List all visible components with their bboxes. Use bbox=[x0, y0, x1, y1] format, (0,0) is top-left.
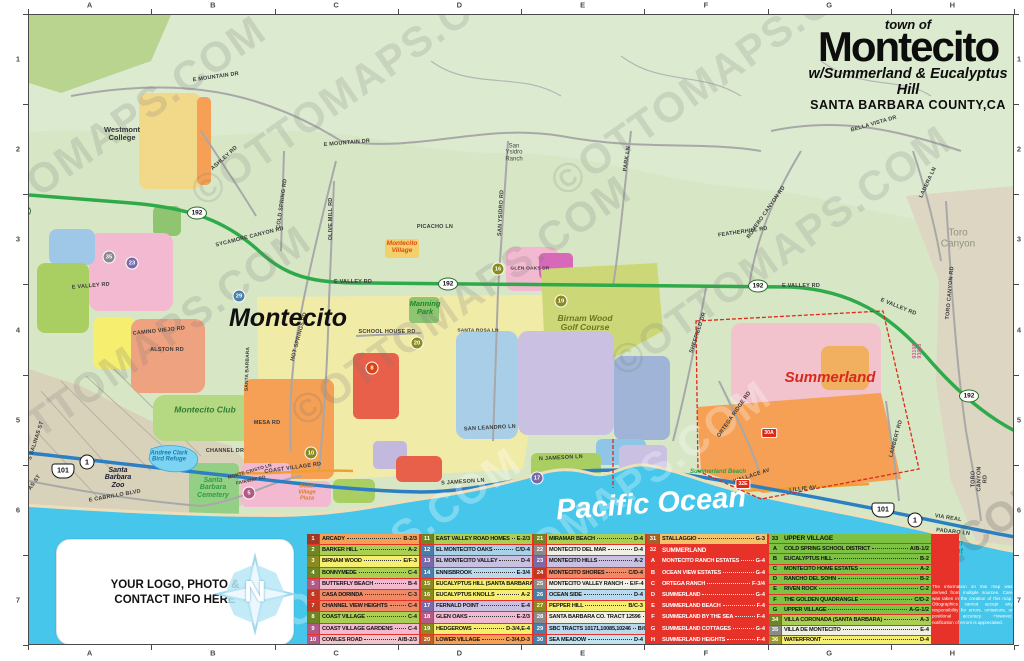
legend-row-body: GLEN OAKSE-2/3 bbox=[434, 612, 532, 622]
legend-row-number: 24 bbox=[534, 568, 546, 578]
legend-row-number: 22 bbox=[534, 545, 546, 555]
legend-row: 14ENNISBROOKE-3/4 bbox=[421, 568, 532, 578]
legend-row-number: A bbox=[769, 544, 781, 553]
legend-row-body: OCEAN SIDED-4 bbox=[547, 590, 645, 600]
legend-dots bbox=[625, 583, 628, 584]
grid-number-4: 4 bbox=[16, 325, 20, 334]
grid-tick bbox=[28, 645, 29, 650]
legend-row-body: CASA DORINDAC-3 bbox=[320, 590, 419, 600]
legend-row-number: E bbox=[769, 585, 781, 594]
legend-grid-ref: D-4 bbox=[634, 637, 643, 643]
legend-item-label: MIRAMAR BEACH bbox=[549, 536, 595, 542]
legend-row-number: G bbox=[769, 605, 781, 614]
grid-tick bbox=[1014, 465, 1019, 466]
legend-row: ESUMMERLAND BEACHF-4 bbox=[647, 601, 767, 611]
legend-row-number: B bbox=[769, 554, 781, 563]
legend-item-label: CASA DORINDA bbox=[322, 592, 363, 598]
area-patch bbox=[37, 263, 89, 333]
legend-item-label: VILLA DE MONTECITO bbox=[784, 627, 841, 633]
legend-row: 21MIRAMAR BEACHD-4 bbox=[534, 534, 645, 544]
legend-row-number: D bbox=[647, 590, 659, 600]
legend-row-number: 16 bbox=[421, 590, 433, 600]
map-canvas: ©OTTOMAPS.COM©OTTOMAPS.COM©OTTOMAPS.COM©… bbox=[28, 14, 1014, 645]
legend-item-label: CHANNEL VIEW HEIGHTS bbox=[322, 603, 388, 609]
grid-tick bbox=[23, 284, 28, 285]
legend-grid-ref: A-G-1/2 bbox=[909, 607, 929, 613]
title-subtitle: w/Summerland & Eucalyptus Hill bbox=[807, 66, 1009, 98]
legend-row: HSUMMERLAND HEIGHTSF-4 bbox=[647, 635, 767, 645]
legend-row-number: 18 bbox=[421, 612, 433, 622]
legend-grid-ref: A-2 bbox=[920, 566, 929, 572]
legend-grid-ref: B-4 bbox=[408, 581, 417, 587]
grid-tick bbox=[768, 9, 769, 14]
grid-tick bbox=[23, 375, 28, 376]
legend-row: 20LOWER VILLAGEC-3/4,D-3 bbox=[421, 635, 532, 645]
legend-grid-ref: C-4 bbox=[408, 603, 417, 609]
legend-item-label: SANTA BARBARA CO. TRACT 12596 bbox=[549, 614, 641, 620]
legend-dots bbox=[707, 583, 750, 584]
legend-row: 15EUCALYPTUS HILL (SANTA BARBARA)B-3 bbox=[421, 579, 532, 589]
area-patch bbox=[49, 229, 95, 265]
legend-row-body: ORTEGA RANCHF-3/4 bbox=[660, 579, 767, 589]
legend-row: 26OCEAN SIDED-4 bbox=[534, 590, 645, 600]
legend-row-body: MONTECITO RANCH ESTATESG-4 bbox=[660, 556, 767, 566]
legend-dots bbox=[347, 538, 402, 539]
legend-dots bbox=[723, 572, 754, 573]
legend-dots bbox=[643, 616, 645, 617]
legend-row-body: MONTECITO HILLSA-2 bbox=[547, 556, 645, 566]
legend-item-label: OCEAN SIDE bbox=[549, 592, 582, 598]
grid-tick bbox=[891, 645, 892, 650]
legend-grid-ref: C-3/4,D-3 bbox=[506, 637, 530, 643]
legend-row: 27PEPPER HILLB/C-3 bbox=[534, 601, 645, 611]
grid-letter-F: F bbox=[704, 1, 709, 10]
legend-row: 24MONTECITO SHORESC/D-4 bbox=[534, 568, 645, 578]
legend-item-label: SUMMERLAND COTTAGES bbox=[662, 626, 731, 632]
ennisbrook-area bbox=[456, 331, 518, 439]
grid-letter-H: H bbox=[950, 649, 955, 658]
legend-row: 18GLEN OAKSE-2/3 bbox=[421, 612, 532, 622]
legend-row-number: 28 bbox=[534, 612, 546, 622]
grid-tick bbox=[1014, 645, 1019, 646]
grid-number-5: 5 bbox=[1017, 415, 1021, 424]
legend-row-number: 3 bbox=[307, 556, 319, 566]
legend-row-body: EAST VALLEY ROAD HOMESE-2/3 bbox=[434, 534, 532, 544]
grid-tick bbox=[23, 104, 28, 105]
legend-dots bbox=[735, 616, 754, 617]
area-patch bbox=[197, 97, 211, 185]
legend-row-number: 8 bbox=[307, 612, 319, 622]
legend-grid-ref: B-2 bbox=[920, 576, 929, 582]
legend-grid-ref: C/D-2 bbox=[914, 597, 929, 603]
legend-grid-ref: B/C-3 bbox=[638, 626, 645, 632]
legend-dots bbox=[497, 594, 519, 595]
legend-dots bbox=[469, 616, 514, 617]
legend-row-body: BARKER HILLA-2 bbox=[320, 545, 419, 555]
legend-row: 13EL MONTECITO VALLEYD-4 bbox=[421, 556, 532, 566]
legend-item-label: HEDGEROWS bbox=[436, 626, 472, 632]
legend-row-body: RANCHO DEL SOHNB-2 bbox=[782, 575, 931, 584]
legend-item-label: SUMMERLAND BEACH bbox=[662, 603, 721, 609]
legend-row-body: CHANNEL VIEW HEIGHTSC-4 bbox=[320, 601, 419, 611]
legend-row-body: SBC TRACTS 10171,10085,10246B/C-3 bbox=[547, 624, 645, 634]
legend-row: 6CASA DORINDAC-3 bbox=[307, 590, 419, 600]
legend-row-body: RIVEN ROCKC-2 bbox=[782, 585, 931, 594]
legend-row-body: COWLES ROADA/B-2/3 bbox=[320, 635, 419, 645]
legend-grid-ref: G-4 bbox=[756, 570, 765, 576]
grid-tick bbox=[1014, 194, 1019, 195]
legend-row: 29SBC TRACTS 10171,10085,10246B/C-3 bbox=[534, 624, 645, 634]
legend-row-number: 27 bbox=[534, 601, 546, 611]
legend-row-number: E bbox=[647, 601, 659, 611]
legend-row-body: COLD SPRING SCHOOL DISTRICTA/B-1/2 bbox=[782, 544, 931, 553]
legend-row-number: 19 bbox=[421, 624, 433, 634]
legend-dots bbox=[828, 609, 907, 610]
legend-dots bbox=[481, 605, 520, 606]
grid-tick bbox=[275, 645, 276, 650]
legend-dots bbox=[860, 568, 918, 569]
legend-row-number: 29 bbox=[534, 624, 546, 634]
grid-letter-B: B bbox=[210, 1, 215, 10]
legend-dots bbox=[633, 628, 636, 629]
grid-tick bbox=[644, 645, 645, 650]
legend-column: 11EAST VALLEY ROAD HOMESE-2/312EL MONTEC… bbox=[421, 534, 532, 645]
legend-item-label: GLEN OAKS bbox=[436, 614, 467, 620]
grid-letter-A: A bbox=[87, 1, 92, 10]
legend-row: FSUMMERLAND BY THE SEAF-4 bbox=[647, 612, 767, 622]
legend-row: 34VILLA CORONADA (SANTA BARBARA)A-3 bbox=[769, 615, 931, 624]
legend-item-label: VILLA CORONADA (SANTA BARBARA) bbox=[784, 617, 882, 623]
legend-row: AMONTECITO RANCH ESTATESG-4 bbox=[647, 556, 767, 566]
legend-item-label: EL MONTECITO VALLEY bbox=[436, 558, 497, 564]
grid-tick bbox=[398, 645, 399, 650]
legend-item-label: ORTEGA RANCH bbox=[662, 581, 705, 587]
legend-row-body: COAST VILLAGEC-4 bbox=[320, 612, 419, 622]
grid-letter-D: D bbox=[457, 649, 462, 658]
legend-row-number: 6 bbox=[307, 590, 319, 600]
map-page: ©OTTOMAPS.COM©OTTOMAPS.COM©OTTOMAPS.COM©… bbox=[0, 0, 1024, 661]
westmont-college-area bbox=[139, 93, 201, 189]
legend-dots bbox=[608, 549, 632, 550]
legend-item-label: THE GOLDEN QUADRANGLE bbox=[784, 597, 858, 603]
legend-row: 8COAST VILLAGEC-4 bbox=[307, 612, 419, 622]
legend-row: 23MONTECITO HILLSA-2 bbox=[534, 556, 645, 566]
grid-letter-G: G bbox=[826, 1, 832, 10]
legend-dots bbox=[597, 538, 632, 539]
legend-row-body: SEA MEADOWD-4 bbox=[547, 635, 645, 645]
legend-item-label: EUCALYPTUS HILL (SANTA BARBARA) bbox=[436, 581, 532, 587]
legend-item-label: COLD SPRING SCHOOL DISTRICT bbox=[784, 546, 870, 552]
legend-dots bbox=[733, 628, 754, 629]
legend-grid-ref: F-3/4 bbox=[752, 581, 765, 587]
legend-row: 19HEDGEROWSD-3/4,E-4 bbox=[421, 624, 532, 634]
legend-row-body: ENNISBROOKE-3/4 bbox=[434, 568, 532, 578]
map-title: town of Montecito w/Summerland & Eucalyp… bbox=[807, 17, 1009, 112]
stallaggio-area bbox=[821, 346, 869, 390]
grid-number-7: 7 bbox=[1017, 595, 1021, 604]
legend-dots bbox=[584, 594, 632, 595]
title-county: SANTA BARBARA COUNTY,CA bbox=[807, 98, 1009, 112]
legend-item-label: SBC TRACTS 10171,10085,10246 bbox=[549, 626, 631, 632]
grid-tick bbox=[1014, 284, 1019, 285]
legend-item-label: EUCALYPTUS HILL bbox=[784, 556, 832, 562]
legend-grid-ref: D-4 bbox=[521, 558, 530, 564]
grid-letter-A: A bbox=[87, 649, 92, 658]
legend-row-number: 5 bbox=[307, 579, 319, 589]
legend-row: 16EUCALYPTUS KNOLLSA-2 bbox=[421, 590, 532, 600]
legend-column: 31STALLAGGIOG-332SUMMERLANDAMONTECITO RA… bbox=[647, 534, 767, 645]
legend-item-label: EAST VALLEY ROAD HOMES bbox=[436, 536, 510, 542]
grid-tick bbox=[644, 9, 645, 14]
legend-row: CMONTECITO HOME ESTATESA-2 bbox=[769, 565, 931, 574]
legend-grid-ref: A/B-2/3 bbox=[398, 637, 417, 643]
legend-item-label: UPPER VILLAGE bbox=[784, 607, 826, 613]
legend-row-body: BUTTERFLY BEACHB-4 bbox=[320, 579, 419, 589]
legend-row-number: 32 bbox=[647, 545, 659, 555]
legend-dots bbox=[375, 583, 406, 584]
legend-row: GUPPER VILLAGEA-G-1/2 bbox=[769, 605, 931, 614]
legend-grid-ref: A-2 bbox=[521, 592, 530, 598]
montecito-village-area bbox=[385, 239, 419, 258]
grid-tick bbox=[23, 14, 28, 15]
grid-tick bbox=[521, 9, 522, 14]
legend-item-label: EUCALYPTUS KNOLLS bbox=[436, 592, 495, 598]
legend-row-body: VILLA DE MONTECITOE-4 bbox=[782, 626, 931, 635]
legend-item-label: COAST VILLAGE bbox=[322, 614, 365, 620]
legend-row-body: EUCALYPTUS HILLB-2 bbox=[782, 554, 931, 563]
legend-row-body: EUCALYPTUS KNOLLSA-2 bbox=[434, 590, 532, 600]
legend-row: 36WATERFRONTD-4 bbox=[769, 636, 931, 645]
legend-grid-ref: E-4 bbox=[920, 627, 929, 633]
legend-grid-ref: E-2/3 bbox=[517, 614, 530, 620]
legend-row: 25MONTECITO VALLEY RANCHE/F-4 bbox=[534, 579, 645, 589]
grid-number-6: 6 bbox=[1017, 505, 1021, 514]
legend-grid-ref: C-2 bbox=[920, 586, 929, 592]
compass-rose: N bbox=[212, 551, 298, 637]
legend-dots bbox=[585, 605, 626, 606]
legend-grid-ref: F-4 bbox=[757, 614, 765, 620]
disclaimer-text: The information on this map was derived … bbox=[932, 585, 1013, 626]
legend-section-title: SUMMERLAND bbox=[660, 545, 767, 555]
legend-grid-ref: A/B-1/2 bbox=[910, 546, 929, 552]
legend-panel: 1ARCADYB-2/32BARKER HILLA-23BIRNAM WOODE… bbox=[307, 534, 959, 645]
legend-dots bbox=[838, 578, 918, 579]
grid-tick bbox=[151, 9, 152, 14]
legend-section-label: UPPER VILLAGE bbox=[784, 535, 833, 542]
legend-item-label: COAST VILLAGE GARDENS bbox=[322, 626, 393, 632]
legend-row-number: 20 bbox=[421, 635, 433, 645]
grid-letter-E: E bbox=[580, 1, 585, 10]
legend-dots bbox=[512, 538, 515, 539]
legend-grid-ref: C-4 bbox=[408, 570, 417, 576]
legend-dots bbox=[606, 572, 626, 573]
legend-grid-ref: C/D-4 bbox=[515, 547, 530, 553]
legend-row-number: 17 bbox=[421, 601, 433, 611]
legend-row-number: 13 bbox=[421, 556, 433, 566]
grid-letter-H: H bbox=[950, 1, 955, 10]
legend-row: BOCEAN VIEW ESTATESG-4 bbox=[647, 568, 767, 578]
legend-row: 35VILLA DE MONTECITOE-4 bbox=[769, 626, 931, 635]
legend-row-number: 31 bbox=[647, 534, 659, 544]
legend-item-label: STALLAGGIO bbox=[662, 536, 696, 542]
legend-row-body: OCEAN VIEW ESTATESG-4 bbox=[660, 568, 767, 578]
grid-number-5: 5 bbox=[16, 415, 20, 424]
manning-park-area bbox=[409, 297, 439, 323]
legend-row: 22MONTECITO DEL MARD-4 bbox=[534, 545, 645, 555]
legend-row-body: MONTECITO HOME ESTATESA-2 bbox=[782, 565, 931, 574]
legend-item-label: SEA MEADOW bbox=[549, 637, 586, 643]
legend-row-number: 35 bbox=[769, 626, 781, 635]
grid-number-1: 1 bbox=[16, 55, 20, 64]
legend-row: ACOLD SPRING SCHOOL DISTRICTA/B-1/2 bbox=[769, 544, 931, 553]
montecito-club-grounds bbox=[153, 395, 253, 441]
legend-dots bbox=[359, 572, 406, 573]
legend-dots bbox=[482, 639, 504, 640]
legend-row: 12EL MONTECITO OAKSC/D-4 bbox=[421, 545, 532, 555]
legend-row-body: MONTECITO SHORESC/D-4 bbox=[547, 568, 645, 578]
legend-dots bbox=[698, 538, 753, 539]
legend-grid-ref: E/F-3 bbox=[403, 558, 417, 564]
grid-tick bbox=[521, 645, 522, 650]
legend-grid-ref: D-4 bbox=[634, 592, 643, 598]
legend-row-body: MIRAMAR BEACHD-4 bbox=[547, 534, 645, 544]
legend-dots bbox=[494, 549, 513, 550]
legend-row-body: FERNALD POINTE-4 bbox=[434, 601, 532, 611]
legend-grid-ref: E/F-4 bbox=[630, 581, 644, 587]
legend-row-body: UPPER VILLAGEA-G-1/2 bbox=[782, 605, 931, 614]
legend-grid-ref: B-2 bbox=[920, 556, 929, 562]
legend-column: 33UPPER VILLAGEACOLD SPRING SCHOOL DISTR… bbox=[769, 534, 931, 645]
legend-grid-ref: A-3 bbox=[920, 617, 929, 623]
grid-tick bbox=[398, 9, 399, 14]
legend-item-label: BIRNAM WOOD bbox=[322, 558, 362, 564]
legend-row: 30SEA MEADOWD-4 bbox=[534, 635, 645, 645]
legend-dots bbox=[823, 639, 918, 640]
legend-grid-ref: E-4 bbox=[521, 603, 530, 609]
legend-dots bbox=[860, 599, 912, 600]
legend-item-label: MONTECITO RANCH ESTATES bbox=[662, 558, 739, 564]
legend-row-number: 9 bbox=[307, 624, 319, 634]
legend-row-body: HEDGEROWSD-3/4,E-4 bbox=[434, 624, 532, 634]
legend-grid-ref: C-3 bbox=[408, 592, 417, 598]
legend-row-number: G bbox=[647, 624, 659, 634]
legend-grid-ref: B-2/3 bbox=[403, 536, 417, 542]
legend-row-body: SUMMERLAND BEACHF-4 bbox=[660, 601, 767, 611]
legend-row-body: SUMMERLAND BY THE SEAF-4 bbox=[660, 612, 767, 622]
legend-row-number: 4 bbox=[307, 568, 319, 578]
legend-item-label: COWLES ROAD bbox=[322, 637, 362, 643]
legend-row-body: SUMMERLANDG-4 bbox=[660, 590, 767, 600]
legend-grid-ref: G-4 bbox=[756, 558, 765, 564]
legend-row-number: A bbox=[647, 556, 659, 566]
legend-dots bbox=[741, 560, 754, 561]
legend-row-number: 30 bbox=[534, 635, 546, 645]
legend-item-label: ARCADY bbox=[322, 536, 345, 542]
grid-letter-C: C bbox=[333, 649, 338, 658]
legend-row-number: 23 bbox=[534, 556, 546, 566]
legend-dots bbox=[499, 560, 519, 561]
legend-grid-ref: B/C-3 bbox=[628, 603, 643, 609]
legend-item-label: MONTECITO SHORES bbox=[549, 570, 604, 576]
legend-row-number: F bbox=[647, 612, 659, 622]
grid-number-4: 4 bbox=[1017, 325, 1021, 334]
legend-section-title: UPPER VILLAGE bbox=[782, 534, 931, 543]
area-patch bbox=[353, 353, 399, 419]
grid-letter-E: E bbox=[580, 649, 585, 658]
legend-row: 9COAST VILLAGE GARDENSC-4 bbox=[307, 624, 419, 634]
legend-row: FTHE GOLDEN QUADRANGLEC/D-2 bbox=[769, 595, 931, 604]
legend-dots bbox=[474, 572, 515, 573]
legend-grid-ref: F-4 bbox=[757, 637, 765, 643]
grid-tick bbox=[1014, 14, 1019, 15]
legend-row-number: D bbox=[769, 575, 781, 584]
legend-row-number: 36 bbox=[769, 636, 781, 645]
legend-dots bbox=[364, 560, 402, 561]
legend-dots bbox=[872, 548, 908, 549]
legend-row-number: 10 bbox=[307, 635, 319, 645]
legend-dots bbox=[367, 616, 406, 617]
legend-row-number: 1 bbox=[307, 534, 319, 544]
grid-tick bbox=[28, 9, 29, 14]
grid-letter-B: B bbox=[210, 649, 215, 658]
legend-section-label: SUMMERLAND bbox=[662, 547, 706, 554]
legend-row-number: 25 bbox=[534, 579, 546, 589]
legend-item-label: MONTECITO DEL MAR bbox=[549, 547, 606, 553]
legend-row: 17FERNALD POINTE-4 bbox=[421, 601, 532, 611]
legend-item-label: ENNISBROOK bbox=[436, 570, 472, 576]
legend-dots bbox=[702, 594, 753, 595]
grid-number-3: 3 bbox=[1017, 235, 1021, 244]
grid-letter-F: F bbox=[704, 649, 709, 658]
legend-row-number: C bbox=[647, 579, 659, 589]
legend-row-body: MONTECITO DEL MARD-4 bbox=[547, 545, 645, 555]
grid-number-2: 2 bbox=[16, 145, 20, 154]
legend-item-label: RIVEN ROCK bbox=[784, 586, 817, 592]
legend-grid-ref: G-3 bbox=[756, 536, 765, 542]
legend-grid-ref: E-2/3 bbox=[517, 536, 530, 542]
legend-row-body: BONNYMEDEC-4 bbox=[320, 568, 419, 578]
legend-row-number: 2 bbox=[307, 545, 319, 555]
legend-row-body: BIRNAM WOODE/F-3 bbox=[320, 556, 419, 566]
legend-dots bbox=[365, 594, 406, 595]
legend-grid-ref: D-4 bbox=[920, 637, 929, 643]
grid-tick bbox=[768, 645, 769, 650]
grid-tick bbox=[1014, 104, 1019, 105]
legend-row: 32SUMMERLAND bbox=[647, 545, 767, 555]
legend-row-body: SANTA BARBARA CO. TRACT 12596A-2 bbox=[547, 612, 645, 622]
legend-row-number: 14 bbox=[421, 568, 433, 578]
legend-item-label: LOWER VILLAGE bbox=[436, 637, 480, 643]
legend-row: 11EAST VALLEY ROAD HOMESE-2/3 bbox=[421, 534, 532, 544]
legend-row: ERIVEN ROCKC-2 bbox=[769, 585, 931, 594]
legend-dots bbox=[599, 560, 632, 561]
grid-number-7: 7 bbox=[16, 595, 20, 604]
legend-column: 1ARCADYB-2/32BARKER HILLA-23BIRNAM WOODE… bbox=[307, 534, 419, 645]
legend-item-label: MONTECITO HILLS bbox=[549, 558, 597, 564]
legend-dots bbox=[723, 605, 755, 606]
legend-dots bbox=[727, 639, 754, 640]
grid-tick bbox=[23, 194, 28, 195]
legend-row: 1ARCADYB-2/3 bbox=[307, 534, 419, 544]
legend-row-number: 11 bbox=[421, 534, 433, 544]
legend-row: 31STALLAGGIOG-3 bbox=[647, 534, 767, 544]
legend-row-body: EUCALYPTUS HILL (SANTA BARBARA)B-3 bbox=[434, 579, 532, 589]
legend-dots bbox=[884, 619, 918, 620]
legend-item-label: OCEAN VIEW ESTATES bbox=[662, 570, 721, 576]
grid-number-2: 2 bbox=[1017, 145, 1021, 154]
legend-row-body: LOWER VILLAGEC-3/4,D-3 bbox=[434, 635, 532, 645]
legend-row: 3BIRNAM WOODE/F-3 bbox=[307, 556, 419, 566]
